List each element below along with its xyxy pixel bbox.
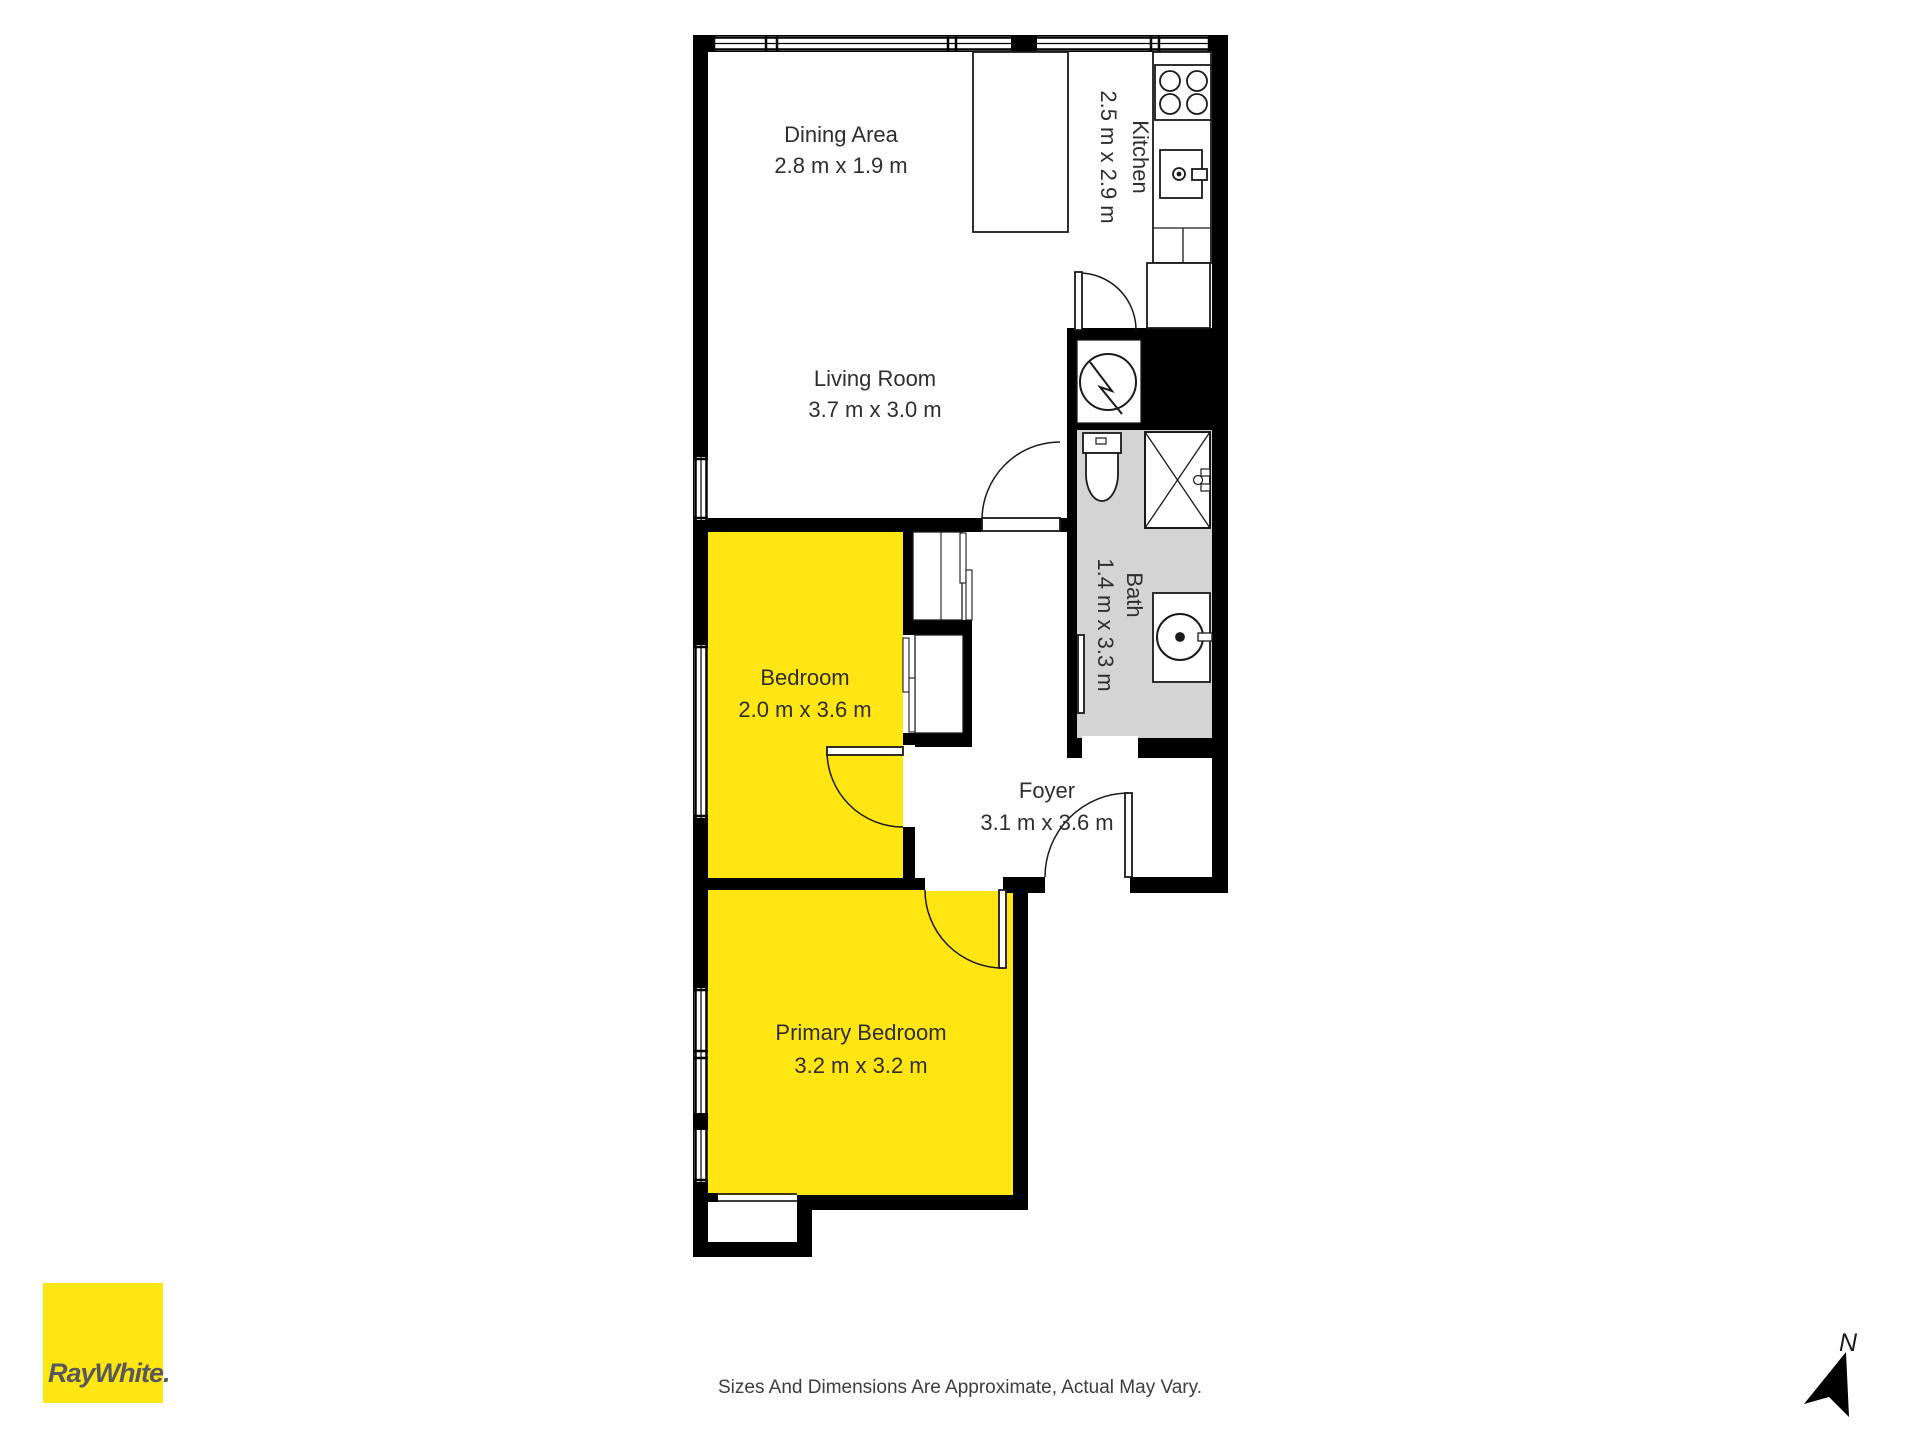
entry-door [1045,793,1132,877]
north-compass: N [1804,1329,1858,1417]
bath-door-opening [1082,736,1138,760]
alcove-window-track [708,1193,797,1202]
foyer-label: Foyer [1019,778,1075,803]
toilet [1083,433,1121,501]
window-living-left [694,457,708,520]
wall-below-closets [903,733,972,747]
shower [1145,432,1210,528]
dining-dims: 2.8 m x 1.9 m [774,153,907,178]
bath-sink [1153,593,1212,682]
fridge [1147,263,1210,328]
door-leaf [982,518,1060,531]
shower-mixer-icon [1201,484,1210,491]
kitchen-sink [1160,150,1207,198]
closet-top [913,532,972,620]
door-leaf [1075,272,1082,330]
door-leaf [827,747,903,755]
sliding-door-panel [960,533,966,583]
living-room-door [982,442,1060,531]
door-swing-arc [982,442,1060,520]
kitchen-door [1075,272,1136,330]
bath-sliding-door-panel [1078,635,1084,713]
wall-foyer-bottom-right [1130,877,1227,893]
door-leaf [999,890,1006,968]
bedroom-label: Bedroom [760,665,849,690]
floorplan-page: Dining Area 2.8 m x 1.9 m Kitchen 2.5 m … [0,0,1920,1440]
door-leaf [1125,793,1132,877]
dining-label: Dining Area [784,122,899,147]
wall-alcove-right [797,1202,812,1242]
disclaimer-text: Sizes And Dimensions Are Approximate, Ac… [0,1377,1920,1399]
bath-label: Bath [1122,572,1147,617]
bath-dims: 1.4 m x 3.3 m [1093,558,1118,691]
primary-dims: 3.2 m x 3.2 m [794,1053,927,1078]
wall-alcove-bottom [693,1242,812,1257]
door-swing-arc [1079,273,1136,330]
kitchen-label: Kitchen [1128,120,1153,193]
primary-label: Primary Bedroom [775,1020,946,1045]
window-bedroom-left [694,645,708,818]
bedroom-door-opening [903,745,915,827]
burner-icon [1160,94,1180,114]
sliding-door-panel [966,570,972,620]
floorplan-drawing: Dining Area 2.8 m x 1.9 m Kitchen 2.5 m … [0,0,1920,1440]
wall-bath-left [1067,430,1077,758]
entry-door-opening [1045,877,1130,893]
window-primary-left [694,988,708,1182]
door-swing-arc [1045,793,1128,877]
wall-top-segment [1011,35,1037,52]
wall-closet-left [903,532,913,620]
north-label: N [1839,1329,1858,1357]
bedroom-dims: 2.0 m x 3.6 m [738,697,871,722]
kitchen-dims: 2.5 m x 2.9 m [1096,90,1121,223]
shower-mixer-icon [1201,469,1210,476]
burner-icon [1187,71,1207,91]
wall-between-closets [903,620,972,635]
wall-bedroom-bottom [708,878,925,890]
burner-icon [1160,71,1180,91]
living-label: Living Room [814,366,936,391]
living-dims: 3.7 m x 3.0 m [808,397,941,422]
wall-primary-right [1013,890,1028,1210]
sliding-door-panel [903,638,909,692]
primary-door-opening [925,877,1003,891]
closet-bottom [903,635,963,733]
wall-primary-bottom [797,1195,1028,1210]
wall-right [1212,35,1228,893]
wall-bedroom-foyer [903,827,915,878]
stove [1155,65,1211,120]
hot-water-unit [1077,340,1141,423]
foyer-dims: 3.1 m x 3.6 m [980,810,1113,835]
burner-icon [1187,94,1207,114]
kitchen-bench [973,52,1068,232]
sliding-door-panel [909,678,915,732]
wall-closet-right [963,635,972,733]
